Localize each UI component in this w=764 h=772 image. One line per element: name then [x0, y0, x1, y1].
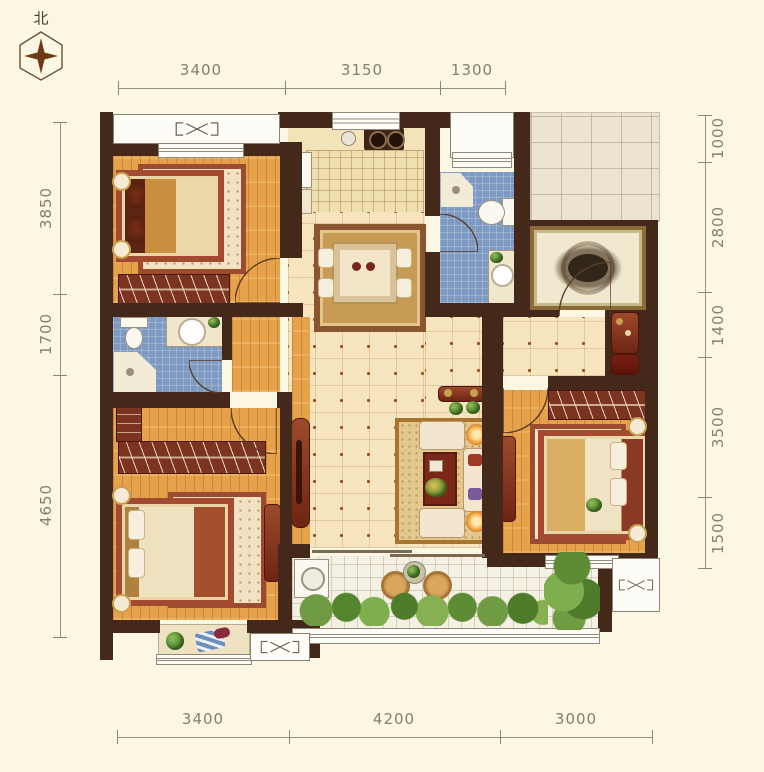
console-decor	[470, 389, 478, 397]
dim-tick	[698, 115, 712, 116]
dim-tick	[440, 81, 441, 95]
dim-tick	[285, 81, 286, 95]
ac-platform-bottom-left	[250, 633, 310, 661]
dim-label-left-3: 4650	[37, 484, 55, 526]
dim-label-top-2: 3150	[341, 61, 383, 79]
plant-icon	[208, 317, 220, 328]
washer-drum-icon	[301, 567, 325, 591]
wall-bedroom1-bottom	[113, 303, 303, 317]
wall-outer-right	[645, 220, 658, 555]
entry-foyer-rug	[530, 226, 646, 310]
wall-top-1	[278, 112, 334, 128]
cabinet-decor	[616, 318, 623, 325]
dining-chair	[396, 248, 412, 268]
wall-bedroom3-top	[548, 376, 645, 390]
shoe-cabinet-lower	[611, 354, 639, 375]
dim-label-right-4: 3500	[709, 406, 727, 448]
ac-unit-icon	[615, 577, 657, 593]
stove-burner	[369, 131, 387, 149]
dim-label-left-2: 1700	[37, 313, 55, 355]
wall-bathroom2-right	[222, 315, 232, 360]
dim-tick	[698, 357, 712, 358]
wall-top-2	[396, 112, 452, 128]
dim-label-bottom-2: 4200	[373, 710, 415, 728]
nightstand	[112, 594, 131, 613]
dim-label-bottom-3: 3000	[555, 710, 597, 728]
dim-tick	[53, 637, 67, 638]
dining-chair	[318, 248, 334, 268]
floor-plan-page: { "compass": { "label": "北" }, "dimensio…	[0, 0, 764, 772]
dim-tick	[698, 292, 712, 293]
stove-burner	[387, 131, 405, 149]
tv-icon	[296, 440, 302, 504]
toilet-bowl	[125, 327, 143, 349]
bed-pillow	[610, 442, 627, 470]
wall-bedroom1-window-right	[240, 142, 280, 156]
nightstand	[628, 417, 647, 436]
wall-bedroom1-window-left	[113, 142, 160, 156]
wall-bedroom1-right	[280, 142, 302, 258]
sofa-cushion	[468, 454, 482, 466]
ac-platform-bottom-right	[612, 558, 660, 612]
wall-central-vertical	[482, 307, 503, 558]
dim-label-right-1: 1000	[709, 117, 727, 159]
plant-icon	[490, 252, 503, 263]
dim-tick	[53, 375, 67, 376]
bathroom-1-window	[452, 152, 512, 168]
dim-tick	[698, 497, 712, 498]
dim-tick	[53, 122, 67, 123]
dim-tick	[289, 730, 290, 744]
kitchen-tile-area	[306, 150, 424, 214]
sliding-door-rail	[312, 550, 412, 553]
table-bowl	[352, 262, 361, 271]
plant-icon	[466, 401, 480, 414]
wall-master-bottom-left	[113, 620, 160, 633]
nightstand	[112, 486, 131, 505]
compass-star-icon	[24, 38, 58, 74]
console-decor	[444, 389, 452, 397]
shower-drain-icon	[126, 368, 134, 376]
wall-kitchen-bath	[425, 126, 440, 216]
sliding-door-rail	[390, 554, 485, 557]
bed-pillow	[610, 478, 627, 506]
wall-master-top-stub	[277, 392, 292, 408]
dim-tick	[53, 294, 67, 295]
master-wardrobe	[118, 441, 266, 474]
small-balcony-window	[156, 654, 252, 665]
plant-icon	[586, 498, 602, 512]
dining-chair	[318, 278, 334, 298]
table-tray	[429, 460, 443, 472]
loveseat-bottom	[419, 508, 465, 538]
dim-tick	[117, 730, 118, 744]
dim-line-top	[118, 88, 505, 89]
bed-pillow	[128, 182, 144, 208]
nightstand	[112, 240, 131, 259]
loveseat-top	[419, 421, 465, 450]
compass-icon	[18, 30, 64, 82]
plant-icon	[407, 565, 420, 578]
wall-master-right	[280, 392, 292, 558]
plant-icon	[449, 402, 463, 415]
table-bowl	[366, 262, 375, 271]
dim-tick	[652, 730, 653, 744]
dim-tick	[698, 568, 712, 569]
nightstand	[628, 524, 647, 543]
balcony-window	[292, 628, 600, 644]
dim-label-bottom-1: 3400	[182, 710, 224, 728]
nightstand	[112, 172, 131, 191]
dim-label-right-5: 1500	[709, 512, 727, 554]
kitchen-window	[332, 112, 400, 130]
plant-icon	[166, 632, 184, 650]
sink	[491, 264, 514, 287]
sofa-cushion	[468, 488, 482, 500]
flower-bouquet-icon	[425, 478, 447, 497]
dim-tick	[118, 81, 119, 95]
bedroom-3-wardrobe	[548, 390, 646, 420]
dim-label-right-3: 1400	[709, 304, 727, 346]
bay-ac-platform-top	[113, 114, 280, 144]
dining-chair	[396, 278, 412, 298]
dining-table	[332, 242, 398, 304]
balcony-plants-hedge	[296, 592, 548, 626]
dim-line-bottom	[117, 737, 652, 738]
bed-pillow	[128, 548, 145, 578]
entry-hall-floor	[503, 317, 605, 376]
corner-plants	[544, 552, 600, 630]
wall-kitchen-bath-lower	[425, 252, 440, 307]
dim-tick	[505, 81, 506, 95]
wall-master-top	[113, 392, 230, 408]
wall-master-bottom-right	[247, 620, 292, 633]
passage-nook-floor	[232, 317, 280, 392]
wall-outer-left	[100, 112, 113, 660]
bed-pillow	[128, 510, 145, 540]
toilet-bowl	[478, 200, 505, 225]
dim-line-right	[705, 115, 706, 568]
sink	[178, 318, 206, 346]
dim-label-right-2: 2800	[709, 206, 727, 248]
dim-label-top-1: 3400	[180, 61, 222, 79]
dim-tick	[500, 730, 501, 744]
wall-balcony-pier-right	[598, 567, 612, 632]
public-corridor-floor	[530, 112, 660, 222]
cooking-pot	[341, 131, 356, 146]
compass-north-label: 北	[33, 8, 48, 29]
dim-label-top-3: 1300	[451, 61, 493, 79]
dim-label-left-1: 3850	[37, 187, 55, 229]
dim-line-left	[60, 122, 61, 637]
ac-unit-icon	[256, 638, 304, 656]
bedroom-1-wardrobe	[118, 274, 230, 305]
dim-tick	[698, 162, 712, 163]
cabinet-decor	[625, 330, 631, 336]
bed-pillow	[128, 216, 144, 242]
shower-drain-icon	[452, 186, 460, 194]
ac-unit-icon	[170, 119, 224, 139]
bedroom-1-window	[158, 142, 244, 158]
